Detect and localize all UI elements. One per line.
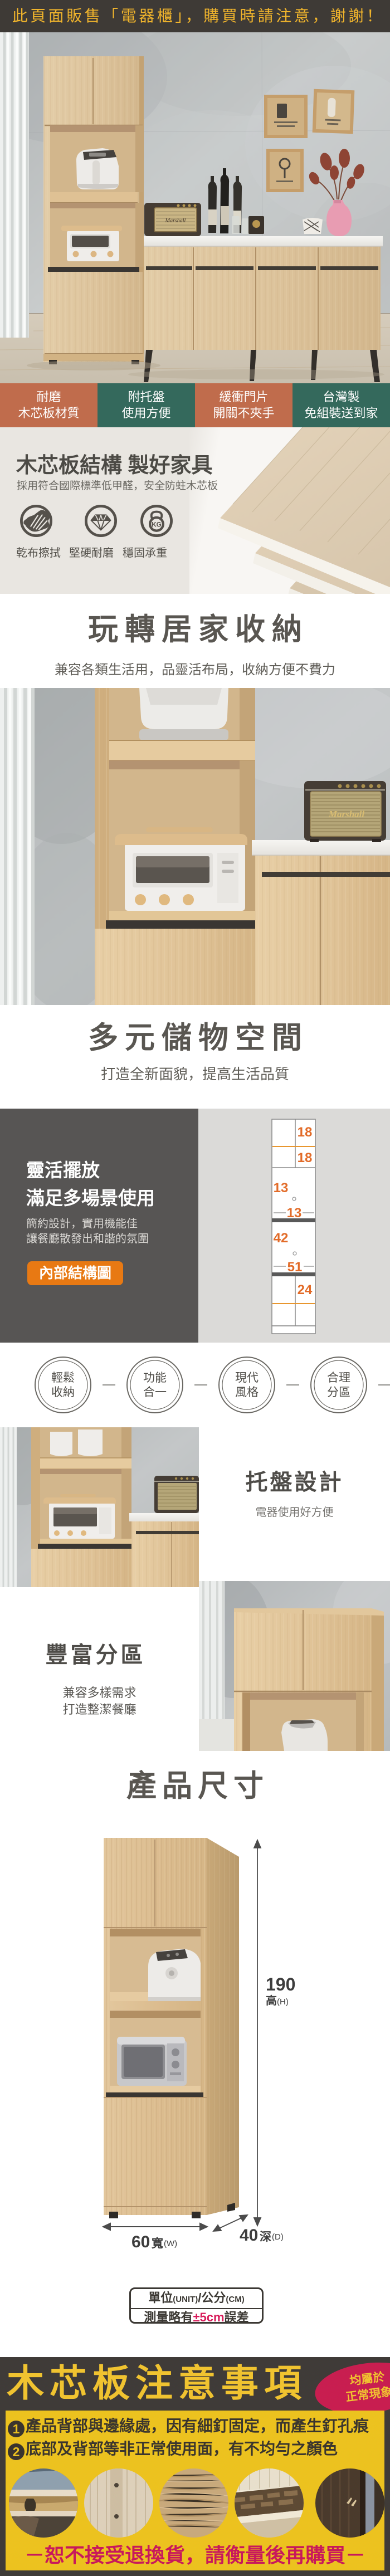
svg-text:現代: 現代 [235,1372,259,1384]
svg-text:Marshall: Marshall [328,809,365,819]
svg-text:風格: 風格 [235,1386,259,1399]
svg-text:42: 42 [274,1231,289,1246]
svg-text:190: 190 [266,1974,295,1994]
svg-text:60: 60 [131,2233,150,2251]
svg-text:51: 51 [287,1260,303,1275]
svg-text:(W): (W) [164,2239,177,2248]
svg-text:高(H): 高(H) [266,1994,289,2007]
svg-text:寬: 寬 [152,2237,163,2250]
svg-text:13: 13 [287,1206,302,1221]
svg-text:18: 18 [298,1150,313,1165]
svg-text:合理: 合理 [327,1372,350,1384]
svg-text:13: 13 [274,1180,289,1196]
svg-text:收納: 收納 [51,1386,75,1399]
svg-text:KG: KG [152,521,161,529]
svg-text:分區: 分區 [327,1386,350,1399]
svg-text:(D): (D) [272,2232,284,2242]
svg-text:功能: 功能 [143,1372,167,1384]
svg-text:24: 24 [298,1282,313,1297]
svg-text:Marshall: Marshall [165,218,186,224]
svg-text:輕鬆: 輕鬆 [51,1372,75,1384]
svg-text:18: 18 [298,1125,313,1140]
svg-text:合一: 合一 [143,1386,167,1399]
svg-text:40: 40 [240,2226,258,2245]
svg-text:深: 深 [260,2231,271,2243]
